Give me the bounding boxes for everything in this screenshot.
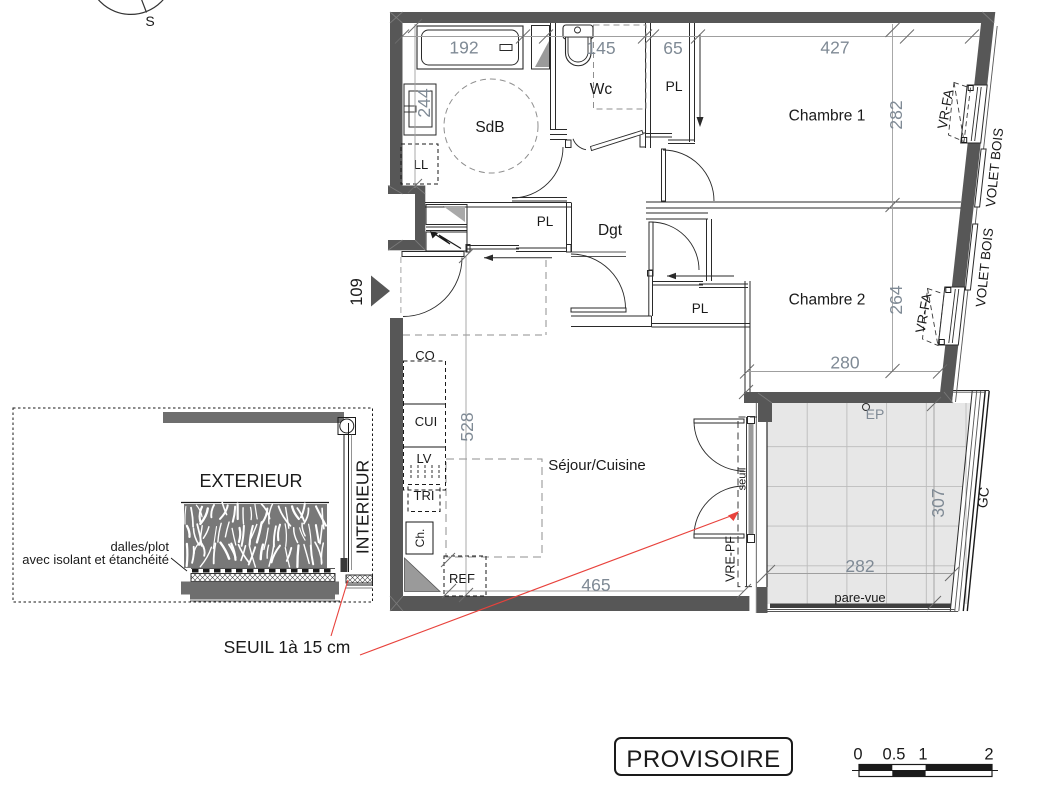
svg-text:CUI: CUI xyxy=(415,414,437,429)
svg-text:Dgt: Dgt xyxy=(598,222,623,239)
svg-text:280: 280 xyxy=(830,353,859,373)
svg-text:REF: REF xyxy=(449,571,475,586)
svg-text:PL: PL xyxy=(537,214,554,229)
svg-text:INTERIEUR: INTERIEUR xyxy=(353,460,373,554)
svg-text:SdB: SdB xyxy=(475,119,504,136)
svg-text:pare-vue: pare-vue xyxy=(834,590,885,605)
svg-text:LL: LL xyxy=(414,157,428,172)
svg-text:109: 109 xyxy=(348,278,366,306)
svg-text:SEUIL 1à 15 cm: SEUIL 1à 15 cm xyxy=(224,637,351,657)
svg-text:244: 244 xyxy=(414,88,434,117)
svg-text:PROVISOIRE: PROVISOIRE xyxy=(626,746,780,773)
svg-text:282: 282 xyxy=(845,556,874,576)
svg-text:EP: EP xyxy=(866,406,885,422)
svg-text:avec isolant et étanchéité: avec isolant et étanchéité xyxy=(22,552,169,567)
svg-text:EXTERIEUR: EXTERIEUR xyxy=(199,471,302,491)
svg-text:Chambre 1: Chambre 1 xyxy=(789,108,866,125)
svg-text:465: 465 xyxy=(581,575,610,595)
svg-text:192: 192 xyxy=(449,38,478,58)
svg-text:PL: PL xyxy=(665,78,682,94)
svg-text:0.5: 0.5 xyxy=(883,746,906,764)
svg-text:2: 2 xyxy=(984,746,993,764)
svg-text:0: 0 xyxy=(853,746,862,764)
svg-text:1: 1 xyxy=(918,746,927,764)
svg-text:GC: GC xyxy=(974,486,992,509)
svg-text:Séjour/Cuisine: Séjour/Cuisine xyxy=(548,457,646,474)
svg-text:528: 528 xyxy=(457,412,477,441)
svg-text:307: 307 xyxy=(928,488,948,517)
svg-text:Chambre 2: Chambre 2 xyxy=(789,292,866,309)
svg-text:264: 264 xyxy=(886,285,906,314)
svg-text:Ch.: Ch. xyxy=(413,529,427,548)
svg-text:Wc: Wc xyxy=(590,81,613,98)
svg-text:282: 282 xyxy=(886,100,906,129)
svg-text:seuil: seuil xyxy=(737,468,749,491)
svg-text:PL: PL xyxy=(692,301,709,316)
svg-text:65: 65 xyxy=(663,38,682,58)
svg-text:145: 145 xyxy=(586,38,615,58)
svg-text:TRI: TRI xyxy=(414,488,435,503)
svg-text:VRE-PF: VRE-PF xyxy=(724,536,738,582)
svg-text:LV: LV xyxy=(417,451,432,466)
svg-text:427: 427 xyxy=(820,38,849,58)
svg-text:S: S xyxy=(145,13,154,29)
